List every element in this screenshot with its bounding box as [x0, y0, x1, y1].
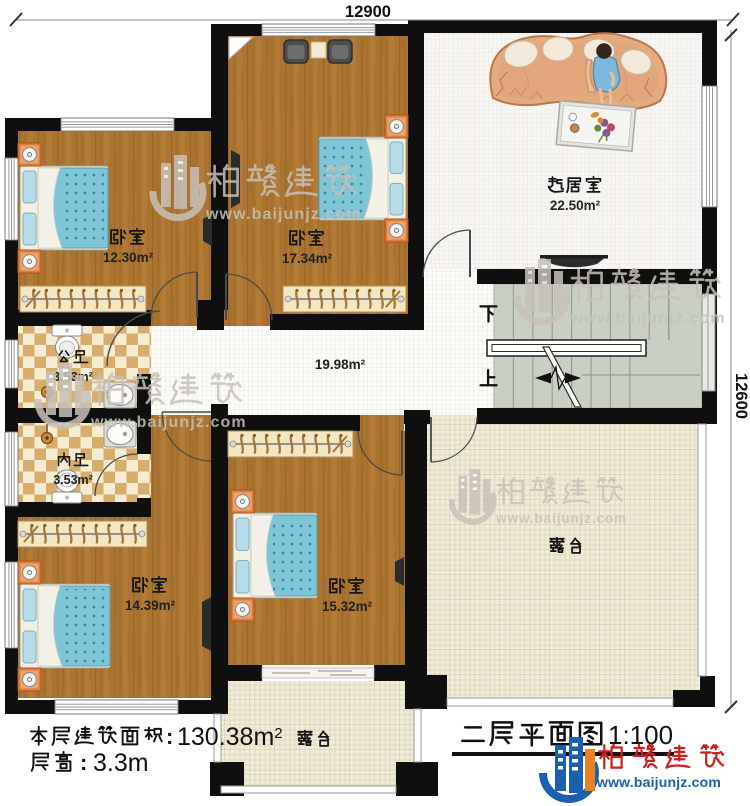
- svg-text:12600: 12600: [732, 373, 750, 419]
- svg-text::: :: [166, 724, 173, 749]
- svg-text:1:100: 1:100: [608, 720, 673, 750]
- svg-text:15.32m²: 15.32m²: [322, 599, 373, 614]
- svg-text:3.3m: 3.3m: [93, 749, 149, 777]
- svg-text:3.53m²: 3.53m²: [53, 473, 93, 487]
- svg-text:www.baijunjz.com: www.baijunjz.com: [205, 206, 362, 223]
- svg-text:130.38m2: 130.38m2: [177, 723, 283, 751]
- svg-text:www.baijunjz.com: www.baijunjz.com: [569, 310, 726, 327]
- svg-text:14.39m²: 14.39m²: [125, 598, 176, 613]
- svg-text:22.50m²: 22.50m²: [550, 198, 601, 213]
- svg-text:www.baijunjz.com: www.baijunjz.com: [596, 774, 721, 790]
- svg-text:19.98m²: 19.98m²: [315, 357, 366, 372]
- svg-text::: :: [80, 750, 87, 775]
- svg-text:12.30m²: 12.30m²: [103, 250, 154, 265]
- svg-text:12900: 12900: [345, 3, 391, 21]
- svg-text:www.baijunjz.com: www.baijunjz.com: [495, 511, 627, 526]
- svg-text:17.34m²: 17.34m²: [282, 251, 333, 266]
- svg-text:www.baijunjz.com: www.baijunjz.com: [90, 414, 247, 431]
